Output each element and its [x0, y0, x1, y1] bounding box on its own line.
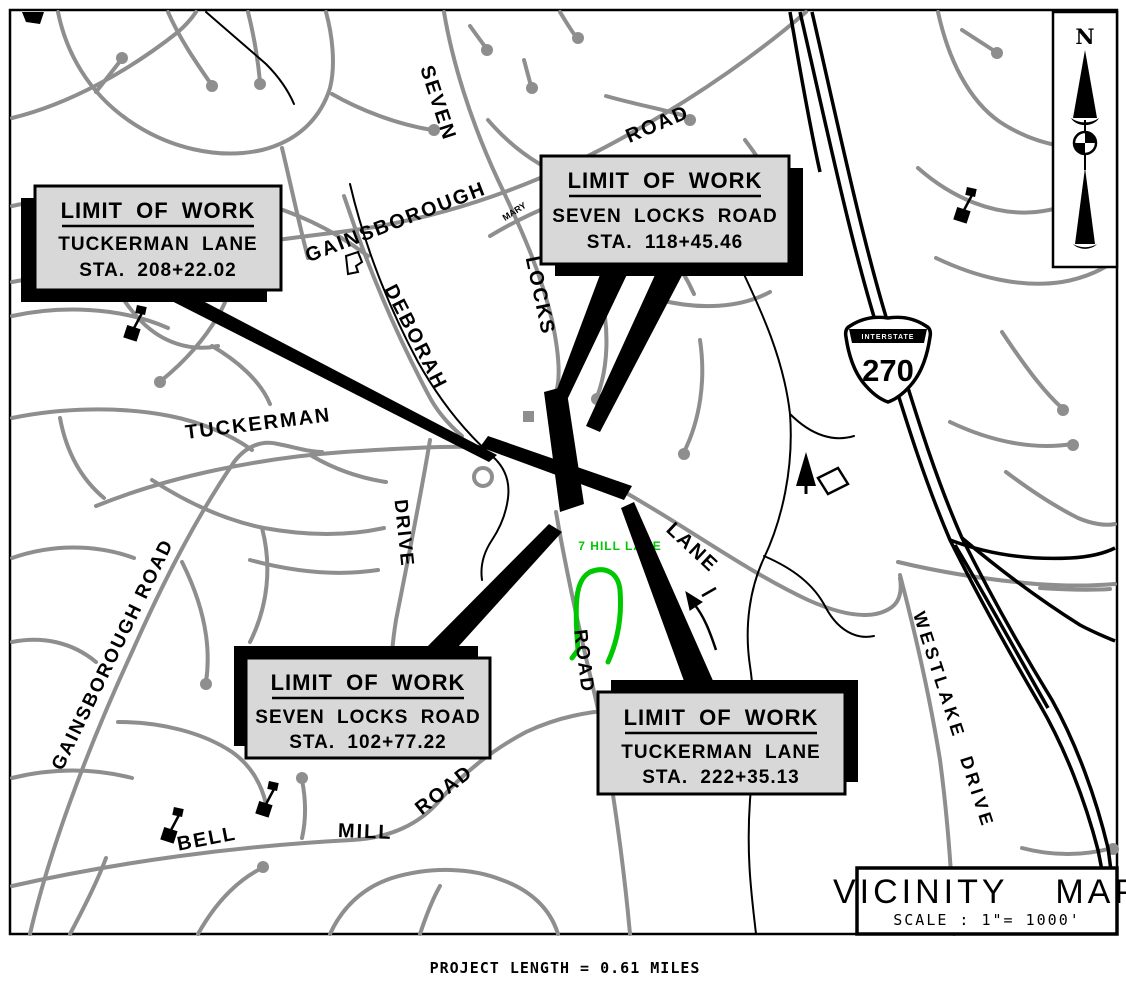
callout-station: STA. 102+77.22 [289, 732, 447, 753]
callout-title: LIMIT OF WORK [271, 670, 466, 695]
label-mill: MILL [338, 820, 393, 844]
callout-station: STA. 222+35.13 [642, 767, 800, 788]
vicinity-map-sheet: 7 HILL LANE INTERSTATE 270 [0, 0, 1126, 992]
callout-station: STA. 208+22.02 [79, 260, 237, 281]
callout-road: SEVEN LOCKS ROAD [552, 206, 777, 227]
callout-station: STA. 118+45.46 [587, 232, 743, 253]
interstate-number: 270 [862, 353, 914, 388]
map-title: VICINITY MAP [833, 873, 1126, 911]
vicinity-map-canvas: 7 HILL LANE INTERSTATE 270 [0, 0, 1126, 992]
interstate-word: INTERSTATE [862, 334, 915, 341]
callout-title: LIMIT OF WORK [568, 168, 763, 193]
traffic-circle [474, 468, 492, 486]
callout-road: TUCKERMAN LANE [58, 234, 257, 255]
callout-road: TUCKERMAN LANE [621, 742, 820, 763]
title-block: VICINITY MAP SCALE : 1"= 1000' [833, 868, 1126, 934]
callout-title: LIMIT OF WORK [61, 198, 256, 223]
map-scale: SCALE : 1"= 1000' [893, 911, 1081, 929]
callout-title: LIMIT OF WORK [624, 705, 819, 730]
callout-road: SEVEN LOCKS ROAD [255, 707, 480, 728]
north-arrow: N [1053, 12, 1117, 267]
north-label: N [1075, 24, 1094, 49]
project-length-note: PROJECT LENGTH = 0.61 MILES [430, 959, 701, 977]
